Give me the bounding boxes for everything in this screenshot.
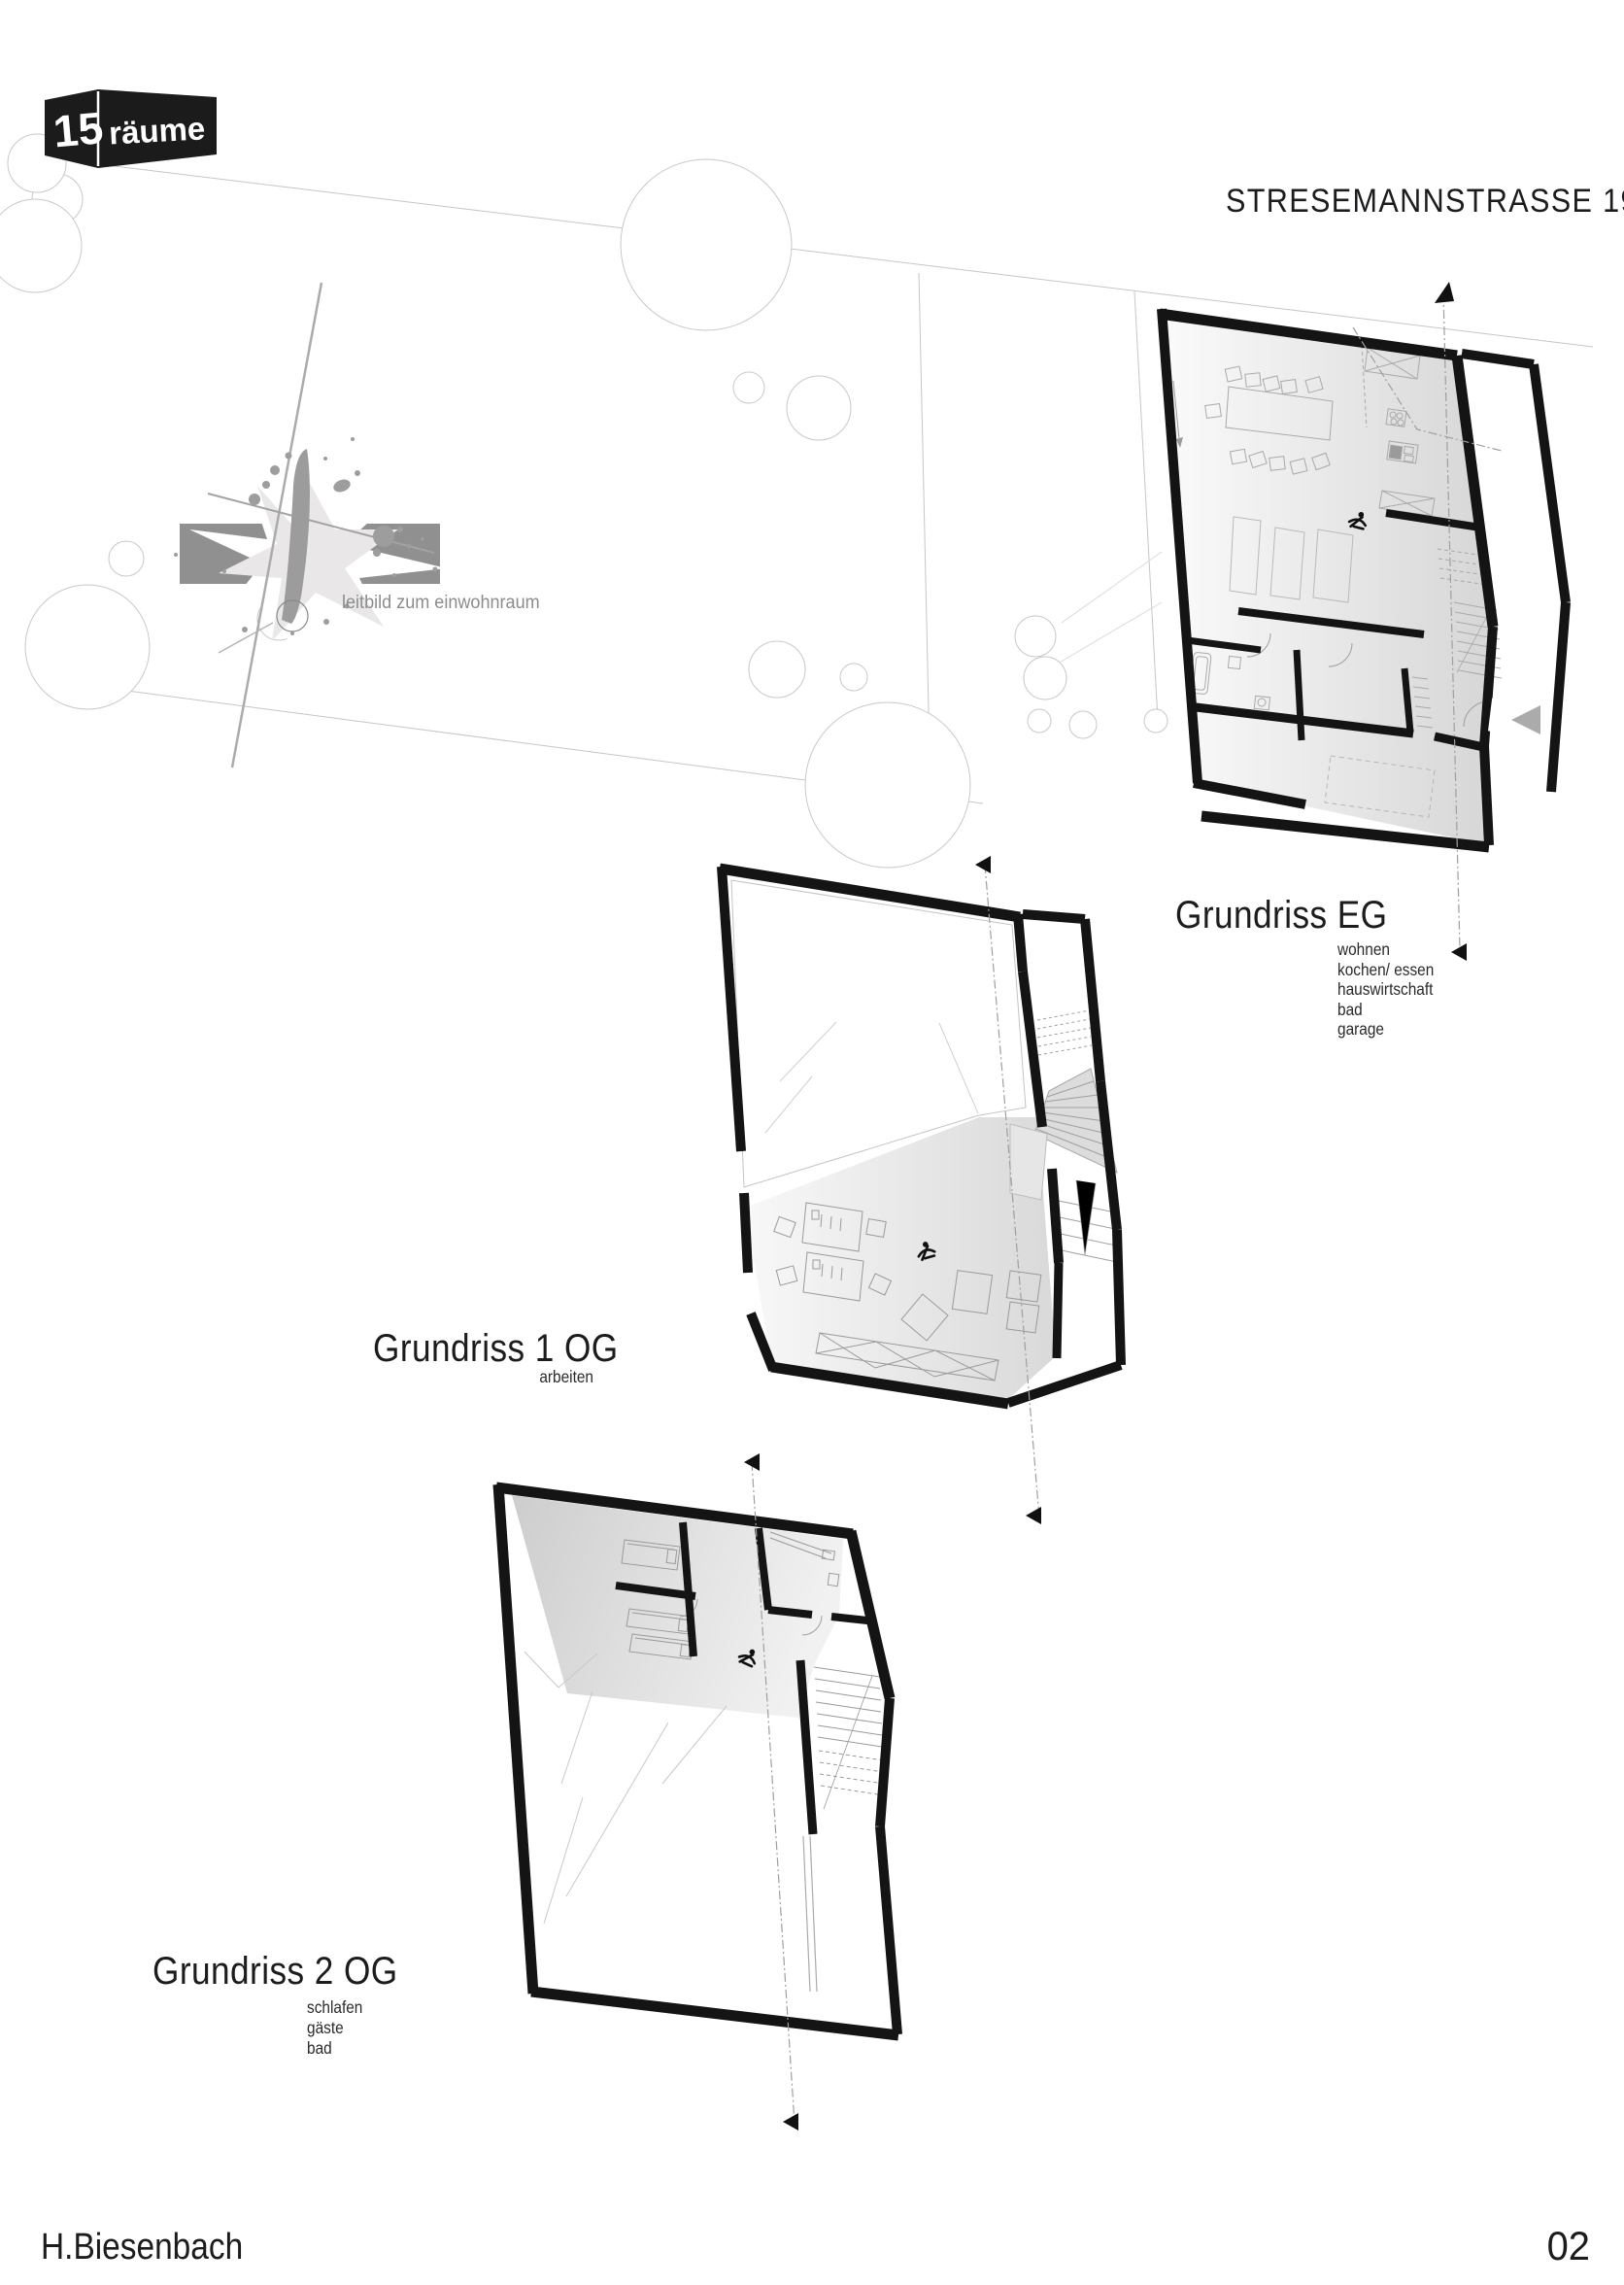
plan-og2-label: Grundriss 2 OG [152,1952,398,1991]
tree-circle [1015,616,1056,657]
tree-circle [749,641,805,698]
page-number: 02 [1519,2226,1590,2267]
plan-eg-room-list: wohnen kochen/ essen hauswirtschaft bad … [1337,939,1434,1040]
floor-plan-eg [1160,309,1566,847]
room-item: arbeiten [399,1367,593,1387]
plan-og2-room-list: schlafen gäste bad [307,1997,362,2059]
room-item: bad [307,2038,362,2059]
tree-circle [1069,711,1097,738]
plan-og1-label: Grundriss 1 OG [373,1329,619,1368]
tree-circle [1024,657,1066,699]
plan-og1-room-list: arbeiten [399,1367,593,1387]
entrance-threshold [1488,699,1515,734]
section-arrow-icon [1026,1507,1041,1524]
room-item: schlafen [307,1997,362,2018]
author-name: H.Biesenbach [41,2229,243,2266]
tree-circle [787,376,851,440]
room-item: bad [1337,1000,1434,1020]
tree-circle [109,541,144,576]
entrance-arrow-icon [1511,705,1540,734]
tree-circle [1028,709,1051,733]
logo-mark: 15 räume [45,89,217,168]
room-item: hauswirtschaft [1337,979,1434,1000]
section-arrow-icon [975,856,991,873]
room-item: garage [1337,1019,1434,1040]
presentation-board: 15 räume STRESEMANNSTRASSE 191 leitbild … [0,0,1624,2285]
tree-circle [621,159,792,330]
sketch-caption: leitbild zum einwohnraum [342,594,540,612]
tree-circle [1144,709,1167,733]
floor-plan-og1 [720,867,1121,1404]
room-item: wohnen [1337,939,1434,960]
section-arrow-icon [783,2113,798,2131]
section-arrow-icon [1451,943,1467,961]
logo-number: 15 [51,102,106,156]
tree-circle [733,372,764,403]
section-arrow-icon [1435,282,1454,303]
sheet-title: STRESEMANNSTRASSE 191 [1226,185,1624,218]
floor-plan-og2 [496,1484,898,2035]
tree-circle [25,585,150,709]
concept-sketch [174,283,447,767]
room-item: kochen/ essen [1337,960,1434,980]
board-graphics: 15 räume [0,0,1624,2285]
plan-eg-label: Grundriss EG [1175,896,1388,935]
room-item: gäste [307,2018,362,2038]
logo-name: räume [108,110,206,151]
site-trees [0,134,1167,868]
site-divider-line [1134,291,1158,720]
tree-circle [840,664,867,691]
tree-circle [805,702,970,868]
